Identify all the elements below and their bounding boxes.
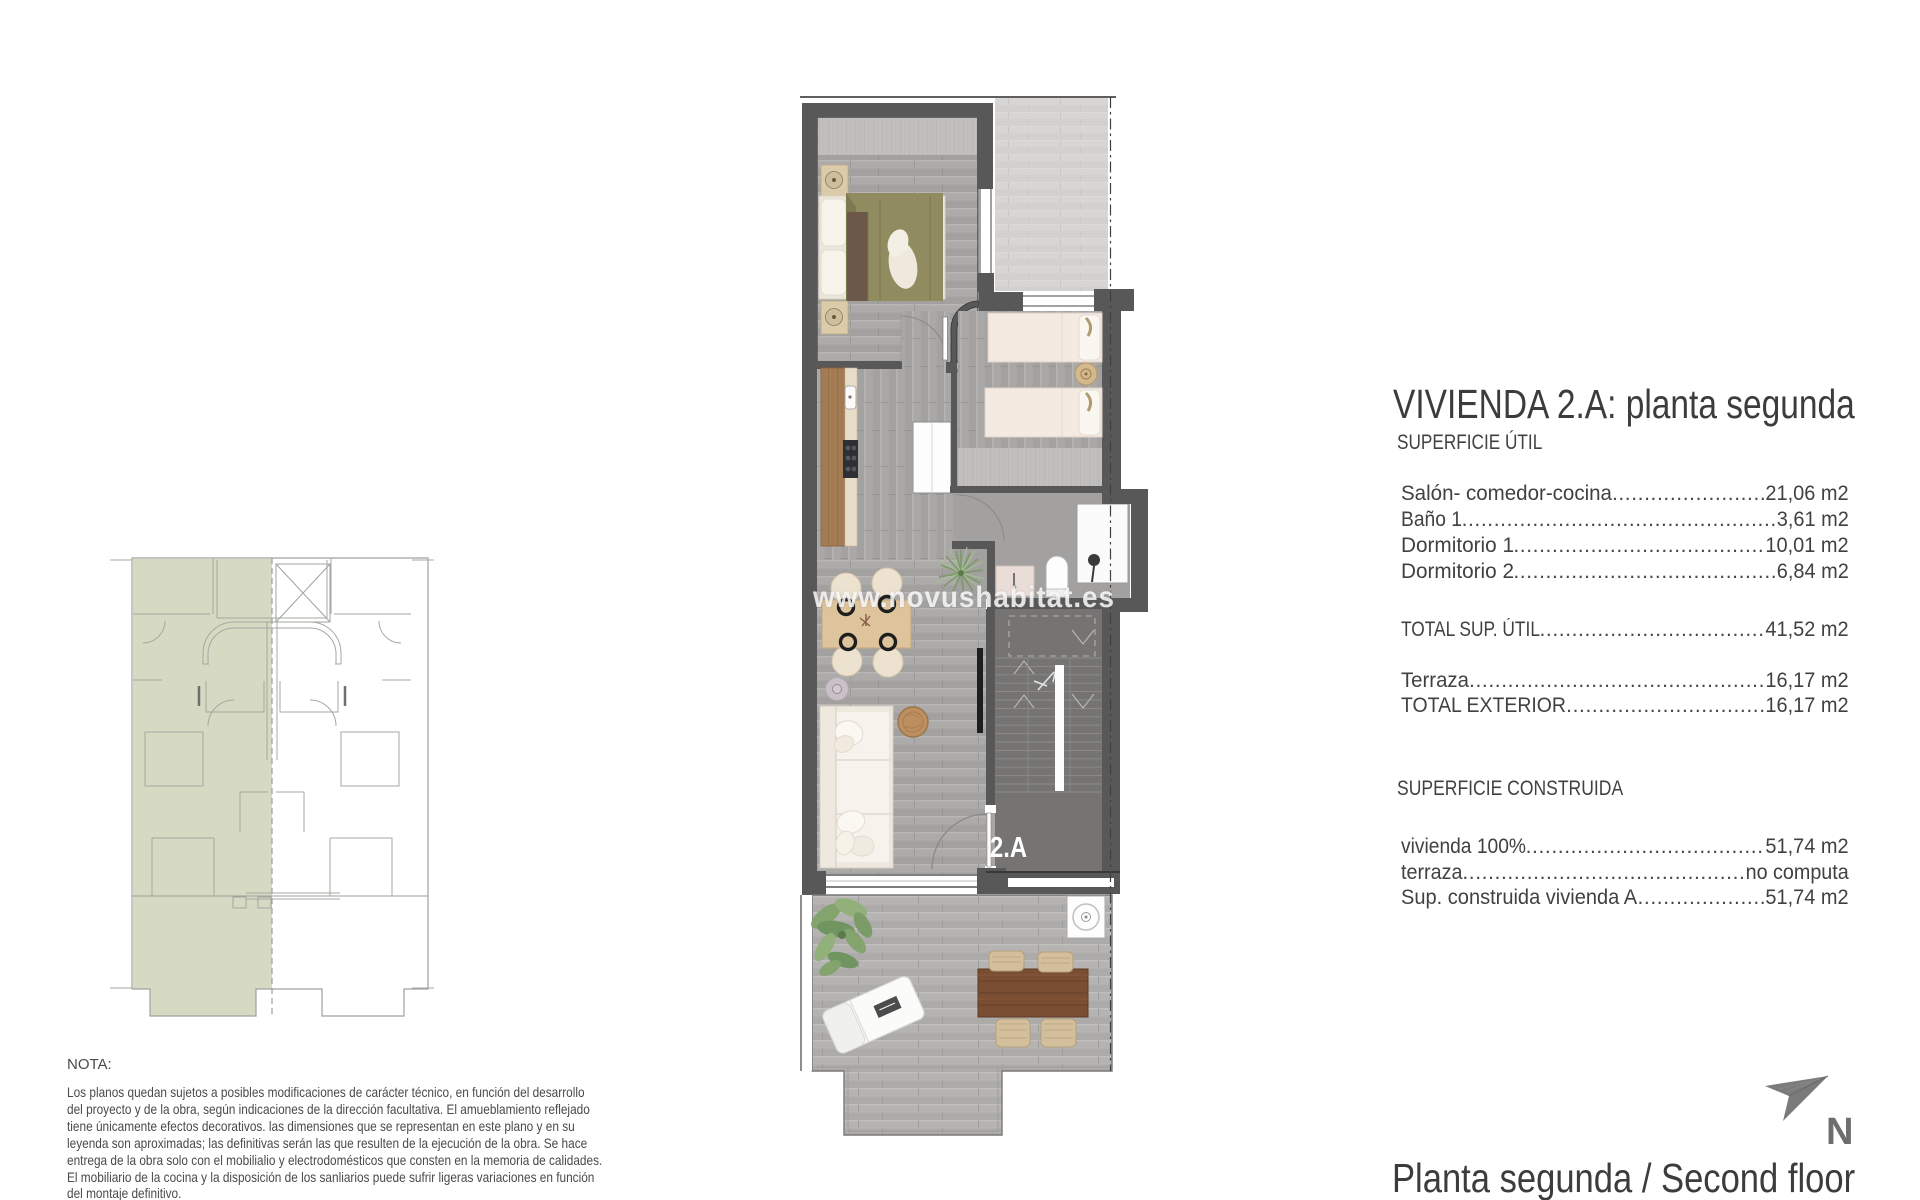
svg-text:2.A: 2.A — [990, 832, 1027, 864]
